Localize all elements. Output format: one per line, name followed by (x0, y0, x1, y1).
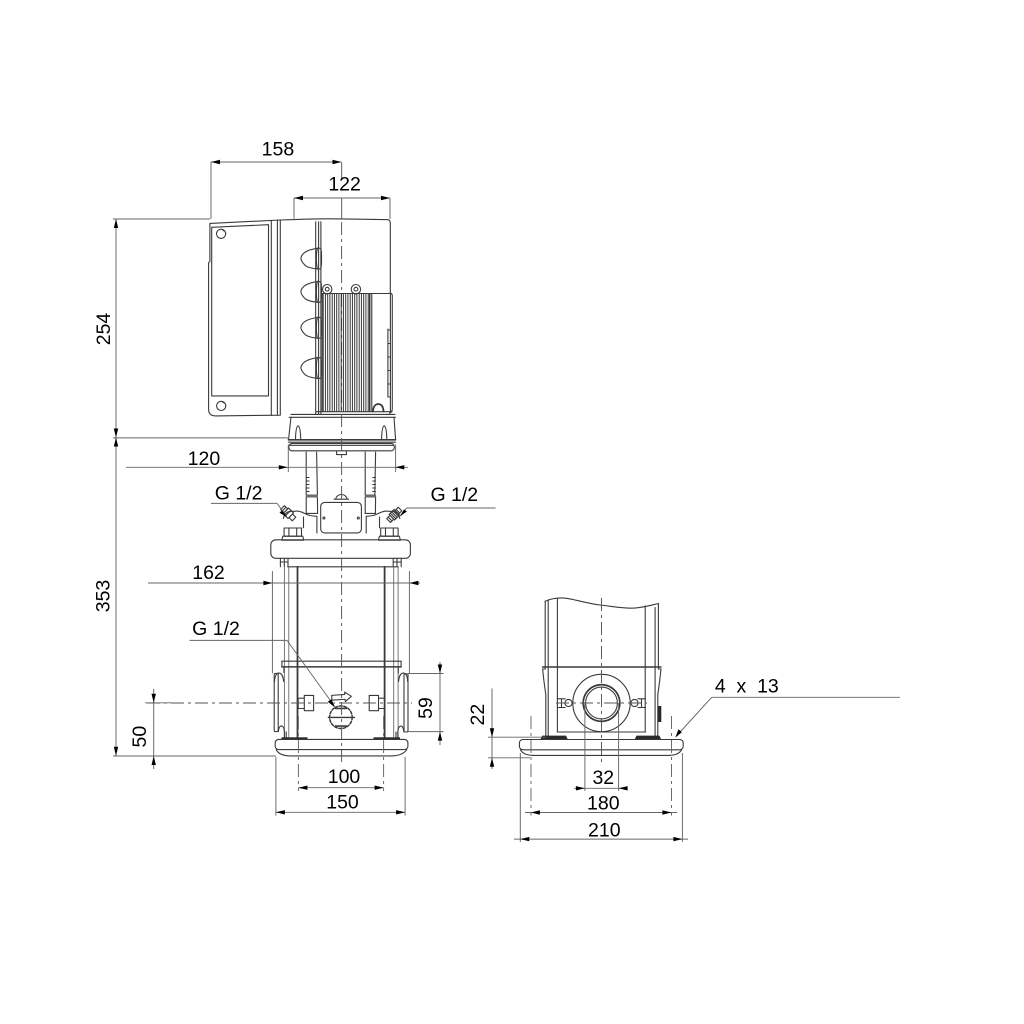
svg-text:G 1/2: G 1/2 (192, 618, 240, 640)
svg-text:150: 150 (326, 792, 359, 814)
svg-text:254: 254 (93, 313, 115, 346)
svg-text:180: 180 (587, 793, 620, 815)
svg-text:G 1/2: G 1/2 (215, 483, 263, 505)
svg-text:50: 50 (129, 726, 151, 748)
svg-text:158: 158 (262, 138, 295, 160)
svg-text:4 x 13: 4 x 13 (715, 675, 779, 697)
svg-text:59: 59 (415, 697, 437, 719)
svg-text:100: 100 (328, 766, 361, 788)
svg-text:22: 22 (467, 704, 489, 726)
svg-text:120: 120 (188, 448, 221, 470)
svg-text:32: 32 (592, 767, 614, 789)
svg-text:353: 353 (93, 580, 115, 613)
svg-text:122: 122 (328, 173, 361, 195)
svg-text:G 1/2: G 1/2 (430, 484, 478, 506)
svg-text:210: 210 (588, 819, 621, 841)
svg-text:162: 162 (192, 562, 225, 584)
